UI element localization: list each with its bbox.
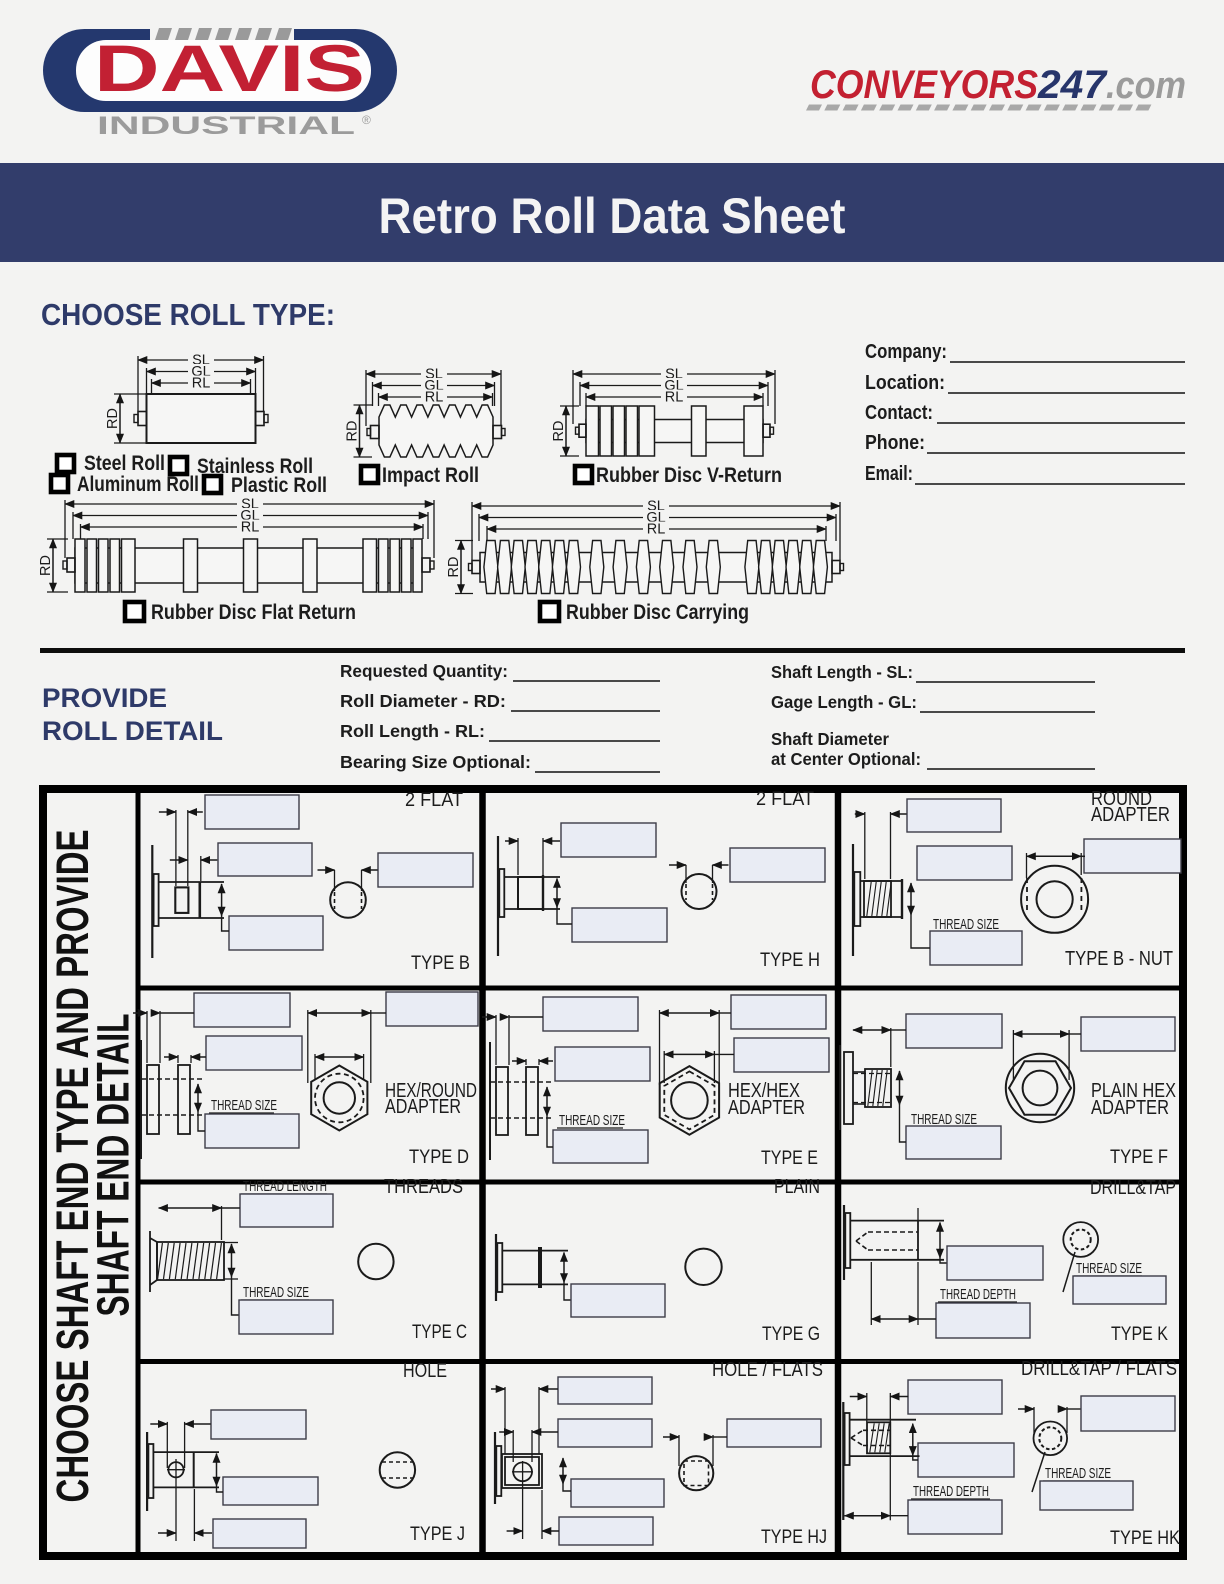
svg-text:ADAPTER: ADAPTER [1091,1097,1169,1119]
svg-text:TYPE K: TYPE K [1111,1323,1168,1345]
svg-text:RD: RD [38,555,54,576]
svg-text:Location:: Location: [865,372,945,394]
svg-text:DRILL&TAP / FLATS: DRILL&TAP / FLATS [1021,1358,1177,1380]
svg-text:ADAPTER: ADAPTER [1091,804,1170,826]
svg-text:THREAD SIZE: THREAD SIZE [1076,1261,1142,1277]
svg-text:HOLE / FLATS: HOLE / FLATS [712,1359,823,1381]
svg-text:Contact:: Contact: [865,402,933,424]
svg-text:RL: RL [647,522,666,538]
svg-text:Bearing Size Optional:: Bearing Size Optional: [340,752,531,772]
svg-text:THREAD DEPTH: THREAD DEPTH [940,1287,1016,1303]
svg-text:RD: RD [551,421,567,442]
svg-text:THREADS: THREADS [384,1176,463,1198]
svg-text:TYPE D: TYPE D [409,1146,469,1168]
svg-text:ADAPTER: ADAPTER [728,1097,805,1119]
svg-text:Impact Roll: Impact Roll [382,464,479,487]
svg-text:TYPE G: TYPE G [762,1323,820,1345]
svg-text:PLAIN: PLAIN [774,1176,820,1198]
svg-text:TYPE HK: TYPE HK [1110,1527,1180,1549]
svg-text:Company:: Company: [865,341,947,363]
svg-text:DAVIS: DAVIS [94,31,365,105]
svg-text:Shaft Length - SL:: Shaft Length - SL: [771,662,913,682]
svg-text:Plastic Roll: Plastic Roll [231,474,327,497]
svg-text:Gage Length - GL:: Gage Length - GL: [771,692,917,712]
svg-text:Rubber Disc V-Return: Rubber Disc V-Return [596,464,782,487]
svg-text:Aluminum Roll: Aluminum Roll [77,473,199,496]
svg-text:ROLL DETAIL: ROLL DETAIL [42,716,223,746]
svg-text:.com: .com [1106,65,1186,107]
svg-text:TYPE B: TYPE B [411,952,470,974]
svg-text:INDUSTRIAL: INDUSTRIAL [97,112,355,140]
svg-text:SHAFT END DETAIL: SHAFT END DETAIL [88,1014,139,1317]
svg-text:TYPE H: TYPE H [760,949,820,971]
svg-text:Roll Length - RL:: Roll Length - RL: [340,721,485,741]
svg-text:Shaft Diameter: Shaft Diameter [771,729,889,749]
svg-text:ADAPTER: ADAPTER [385,1096,461,1118]
svg-text:RL: RL [192,376,211,392]
svg-text:TYPE E: TYPE E [761,1147,818,1169]
svg-text:RL: RL [425,390,444,406]
svg-text:TYPE J: TYPE J [410,1523,465,1545]
svg-text:Phone:: Phone: [865,432,925,454]
svg-text:247: 247 [1037,63,1108,107]
svg-text:CONVEYORS: CONVEYORS [810,63,1038,107]
svg-text:TYPE F: TYPE F [1110,1146,1168,1168]
svg-text:RL: RL [241,520,260,536]
svg-text:Email:: Email: [865,463,913,485]
svg-text:®: ® [362,113,371,127]
svg-text:THREAD SIZE: THREAD SIZE [559,1113,625,1129]
svg-text:THREAD DEPTH: THREAD DEPTH [913,1484,989,1500]
svg-text:Rubber Disc Flat Return: Rubber Disc Flat Return [151,601,356,624]
svg-text:CHOOSE ROLL TYPE:: CHOOSE ROLL TYPE: [41,297,335,332]
svg-text:PROVIDE: PROVIDE [42,683,167,713]
svg-text:THREAD LENGTH: THREAD LENGTH [243,1179,327,1195]
svg-text:TYPE B - NUT: TYPE B - NUT [1065,948,1173,970]
svg-text:Retro Roll Data Sheet: Retro Roll Data Sheet [379,188,846,244]
svg-text:Rubber Disc Carrying: Rubber Disc Carrying [566,601,749,624]
svg-text:THREAD SIZE: THREAD SIZE [243,1285,309,1301]
svg-text:HOLE: HOLE [403,1360,447,1382]
svg-text:Steel Roll: Steel Roll [84,452,165,475]
svg-text:2 FLAT: 2 FLAT [405,790,463,811]
svg-text:THREAD SIZE: THREAD SIZE [211,1098,277,1114]
svg-text:RD: RD [105,408,121,429]
svg-text:TYPE HJ: TYPE HJ [761,1526,827,1548]
svg-text:at Center Optional:: at Center Optional: [771,749,921,769]
svg-text:2 FLAT: 2 FLAT [756,789,814,810]
svg-text:Roll Diameter - RD:: Roll Diameter - RD: [340,691,506,711]
svg-text:RD: RD [446,557,462,578]
svg-text:TYPE C: TYPE C [412,1321,467,1343]
svg-text:THREAD SIZE: THREAD SIZE [1045,1466,1111,1482]
svg-text:DRILL&TAP: DRILL&TAP [1090,1177,1176,1199]
svg-text:Requested Quantity:: Requested Quantity: [340,661,508,681]
svg-text:RL: RL [665,390,684,406]
svg-text:RD: RD [345,421,361,442]
